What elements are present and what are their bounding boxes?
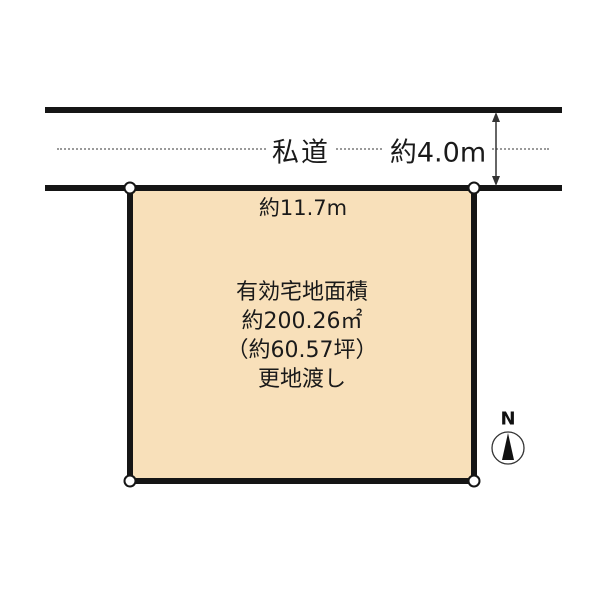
- land-plot-diagram: 私道 約4.0m 約11.7m 有効宅地面積 約200.26㎡ （約60.57坪…: [0, 0, 600, 600]
- road-width-label: 約4.0m: [384, 131, 492, 170]
- plot-frontage-label: 約11.7m: [259, 192, 347, 222]
- plot-area-text: 有効宅地面積 約200.26㎡ （約60.57坪） 更地渡し: [227, 278, 378, 394]
- plot-area-sqm: 約200.26㎡: [227, 307, 378, 336]
- plot-area-title: 有効宅地面積: [227, 278, 378, 307]
- road-edge-line-top: [45, 107, 562, 113]
- corner-marker-top-left: [124, 182, 137, 195]
- corner-marker-top-right: [468, 182, 481, 195]
- arrowhead-down-icon: [492, 176, 500, 186]
- compass-north-label: N: [500, 409, 515, 430]
- road-width-arrow: [488, 112, 504, 186]
- plot-condition: 更地渡し: [227, 365, 378, 394]
- arrowhead-up-icon: [492, 112, 500, 122]
- corner-marker-bottom-left: [124, 475, 137, 488]
- corner-marker-bottom-right: [468, 475, 481, 488]
- road-name-label: 私道: [266, 131, 336, 170]
- compass-needle-icon: [491, 431, 525, 465]
- plot-area-tsubo: （約60.57坪）: [227, 336, 378, 365]
